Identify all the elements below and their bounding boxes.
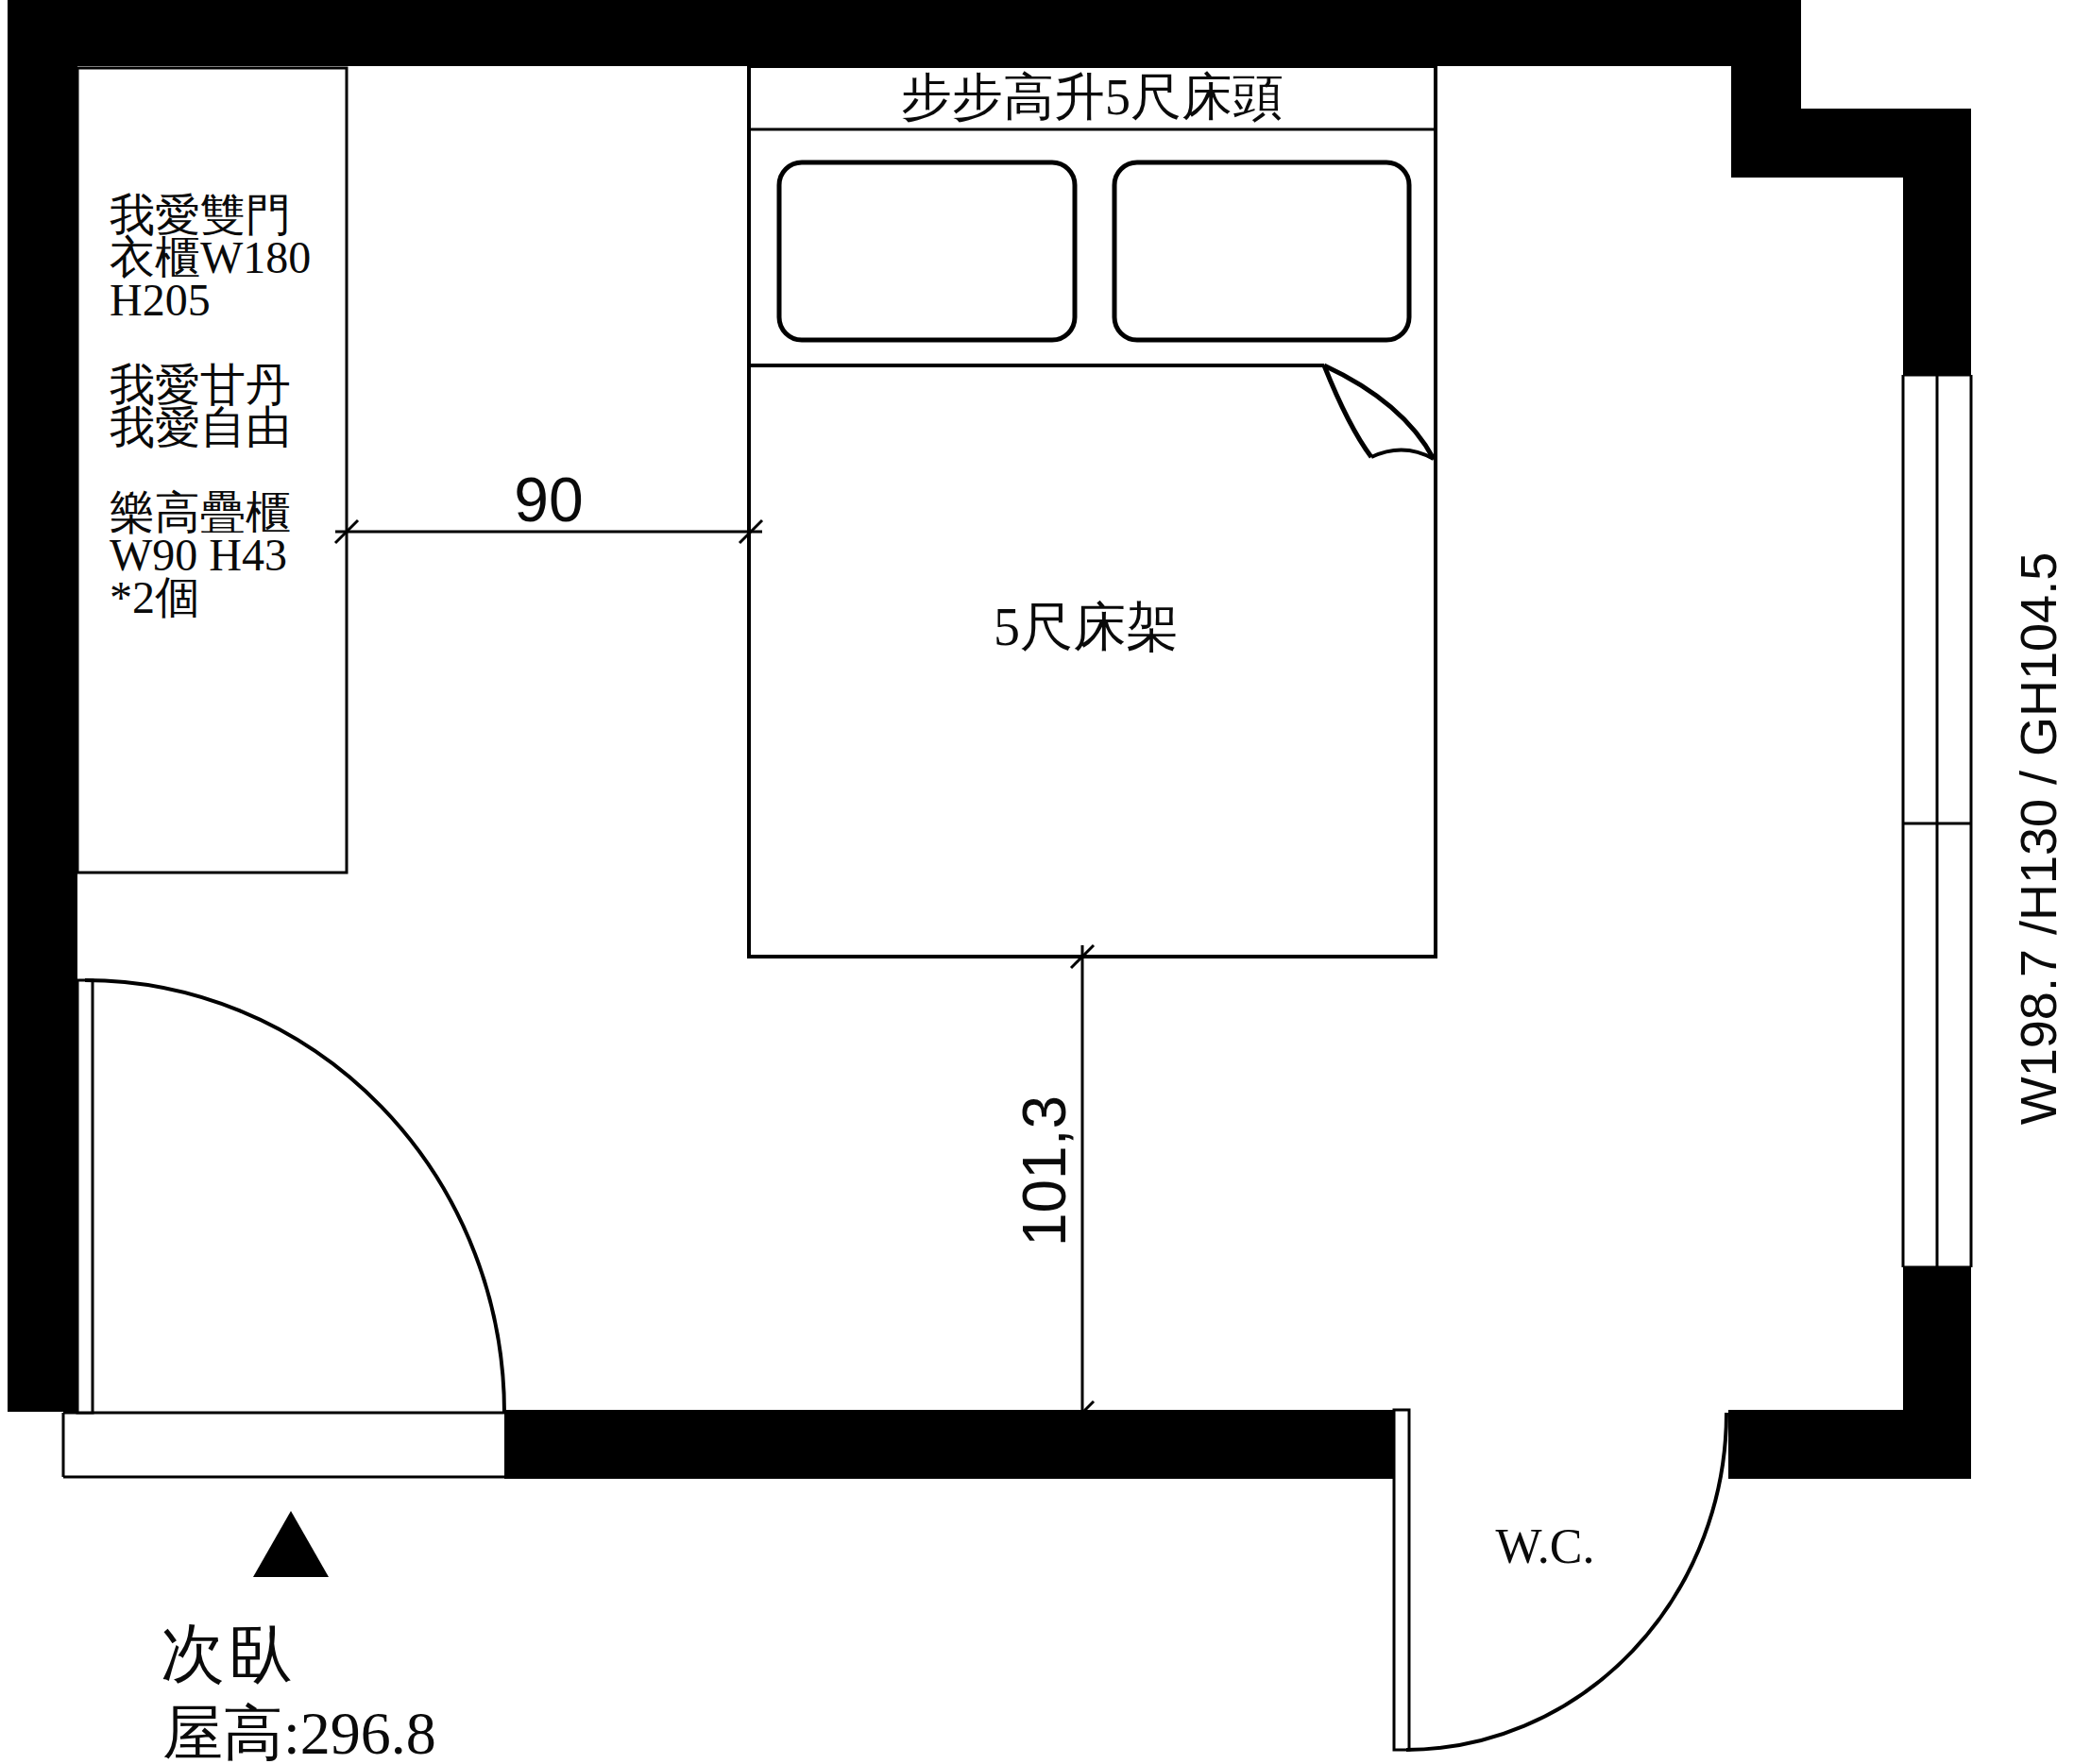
entry-door-threshold <box>63 1413 504 1477</box>
wc-door <box>1394 1410 1726 1750</box>
headboard-label: 步步高升5尺床頭 <box>749 66 1436 129</box>
wc-door-arc <box>1406 1413 1726 1750</box>
window <box>1903 375 1971 1267</box>
wc-label: W.C. <box>1496 1518 1595 1574</box>
bed <box>749 66 1436 957</box>
pillow-left <box>779 162 1075 340</box>
floor-plan: 步步高升5尺床頭 我愛雙門 衣櫃W180 H205 我愛甘丹 我愛自由 樂高疊櫃… <box>0 0 2074 1764</box>
top-wall <box>8 0 1801 66</box>
pillow-right <box>1114 162 1409 340</box>
wc-door-leaf <box>1394 1410 1409 1750</box>
left-wall <box>8 0 77 1412</box>
entry-arrow-icon <box>253 1511 329 1577</box>
dim-101-label: 101,3 <box>1010 1095 1079 1247</box>
window-spec-label: W198.7 /H130 / GH104.5 <box>2009 552 2067 1125</box>
bottom-right-wall <box>1728 1410 1971 1479</box>
entry-door-leaf <box>77 980 93 1413</box>
right-wall-upper <box>1903 178 1971 375</box>
entry-door-arc <box>85 980 504 1413</box>
floor-plan-drawing <box>0 0 2074 1764</box>
bed-label: 5尺床架 <box>994 592 1179 664</box>
dim-90-label: 90 <box>514 464 583 535</box>
top-right-wall <box>1801 109 1971 178</box>
top-right-step-wall <box>1731 66 1801 178</box>
bottom-wall <box>504 1410 1395 1479</box>
wardrobe-note: 我愛雙門 衣櫃W180 H205 我愛甘丹 我愛自由 樂高疊櫃 W90 H43 … <box>110 194 311 619</box>
entry-door <box>63 980 504 1477</box>
room-name-label: 次臥 <box>161 1611 297 1697</box>
ceiling-height-label: 屋高:296.8 <box>162 1692 436 1764</box>
